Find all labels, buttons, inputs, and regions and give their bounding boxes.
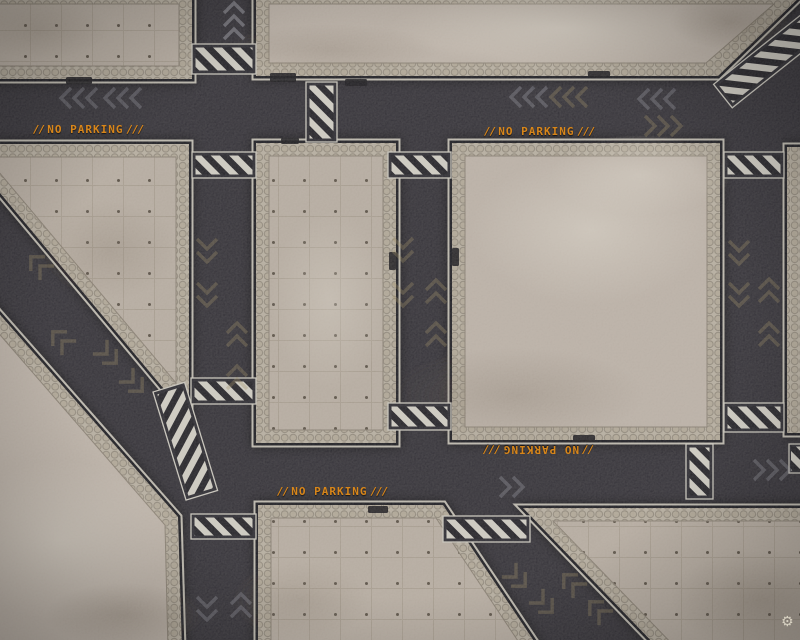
no-parking-label-rotated: //NO PARKING/// [483, 442, 593, 456]
scifi-battle-mat: //NO PARKING/// //NO PARKING/// //NO PAR… [0, 0, 800, 640]
hazard-slashes: // [582, 443, 593, 456]
gear-watermark-icon: ⚙ [781, 615, 794, 629]
hazard-slashes: // [33, 123, 44, 136]
hazard-slashes: /// [126, 123, 143, 136]
no-parking-label: //NO PARKING/// [277, 485, 387, 499]
hazard-slashes: /// [370, 485, 387, 498]
no-parking-text: NO PARKING [44, 123, 126, 136]
no-parking-text: NO PARKING [495, 125, 577, 138]
hazard-slashes: /// [577, 125, 594, 138]
hazard-slashes: // [277, 485, 288, 498]
hazard-slashes: /// [483, 443, 500, 456]
no-parking-label: //NO PARKING/// [484, 125, 594, 139]
mat-artwork [0, 0, 800, 640]
no-parking-text: NO PARKING [288, 485, 370, 498]
vignette-overlay [0, 0, 800, 640]
no-parking-label: //NO PARKING/// [33, 123, 143, 137]
no-parking-text: NO PARKING [500, 443, 582, 456]
hazard-slashes: // [484, 125, 495, 138]
